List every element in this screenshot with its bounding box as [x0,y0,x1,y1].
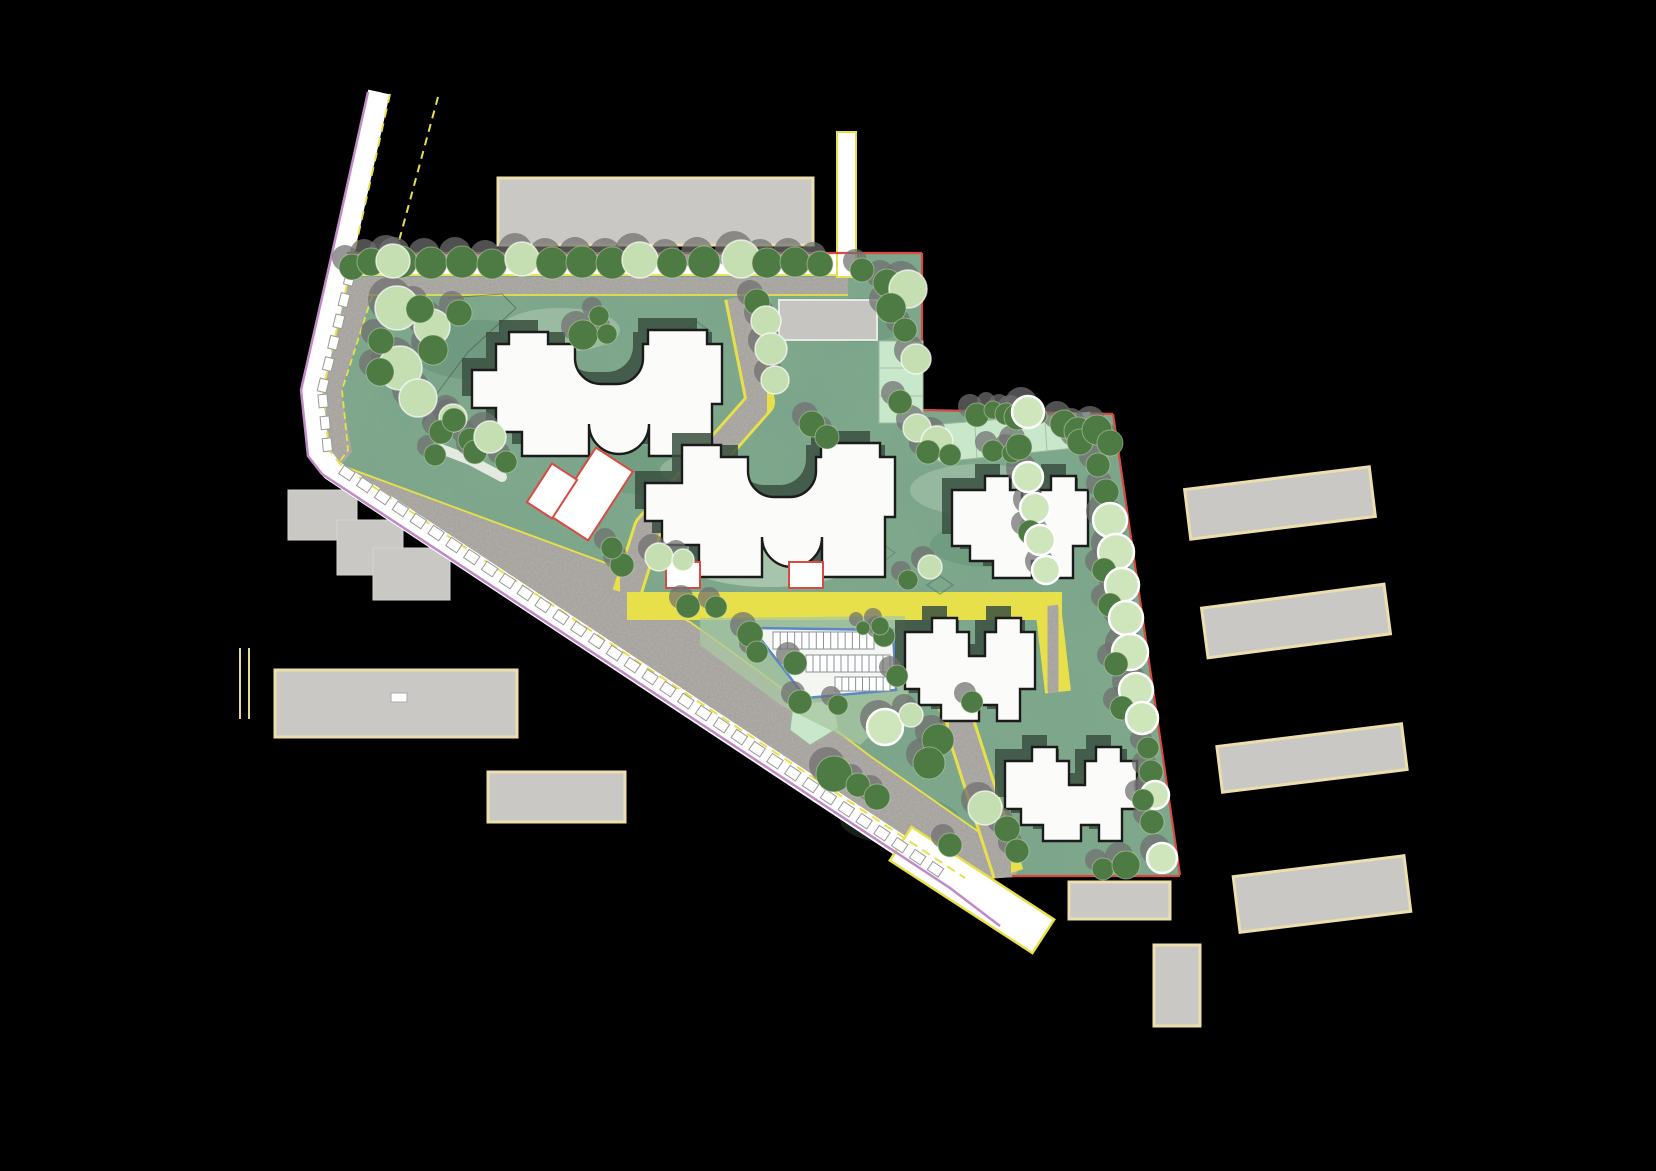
tree-dark [406,295,434,323]
tree-dark [780,247,810,277]
tree-dark [994,816,1020,842]
tree-dark [597,324,617,344]
tree-dark [495,451,517,473]
tree-light [899,703,923,727]
tree-dark [893,318,917,342]
tree-dark [705,596,727,618]
tree-light [755,333,787,365]
setback-dashed-line [396,97,438,252]
neighbor-building-east-1 [1185,467,1376,539]
tree-light [505,242,539,276]
tree-dark [536,247,568,279]
tree-dark [788,690,812,714]
tree-dark [913,747,945,779]
utility-structure-2 [789,562,823,588]
tree-light [1093,503,1127,537]
tree-light [918,555,942,579]
neighbor-building-west-long-notch [391,693,407,702]
tree-dark [850,258,874,282]
tree-light [1126,702,1158,734]
neighbor-building-southwest [488,772,625,822]
tree-dark [916,440,940,464]
tree-dark [657,248,687,278]
tree-dark [815,425,839,449]
tree-dark [982,440,1004,462]
neighbor-building-east-2 [1202,584,1391,658]
tree-dark [368,328,394,354]
path-middle-branch-gravel [1048,606,1058,692]
tree-light [1032,556,1060,584]
neighbor-building-west-step-3 [373,548,450,600]
tree-dark [886,665,908,687]
tree-light [901,344,931,374]
tree-dark [1132,789,1154,811]
tree-light [399,379,437,417]
tree-dark [1137,737,1159,759]
tree-dark [898,570,918,590]
tree-light [1020,493,1050,523]
tree-dark [961,691,983,713]
tree-dark [752,248,782,278]
site-plan [0,0,1656,1171]
tree-light [751,306,781,336]
tree-light [376,244,410,278]
tree-dark [446,246,478,278]
site-plan-canvas [0,0,1656,1171]
tree-dark [1097,430,1123,456]
tree-dark [477,249,507,279]
tree-dark [938,833,962,857]
tree-dark [601,537,623,559]
tree-dark [424,444,446,466]
tree-light [1109,601,1143,635]
neighbor-building-south [1069,882,1170,919]
neighbor-building-top [498,178,813,245]
tree-light [968,791,1002,825]
tree-light [761,366,789,394]
tree-light [1013,462,1043,492]
tree-dark [939,444,961,466]
tree-light [645,543,673,571]
tree-dark [1092,858,1114,880]
tree-light [474,421,506,453]
tree-dark [1104,652,1128,676]
tree-light [1025,525,1055,555]
neighbor-building-east-3 [1217,724,1407,792]
tree-light [867,709,903,745]
tree-dark [442,408,466,432]
tree-dark [688,246,720,278]
parking-lot-gray [779,300,877,340]
tree-dark [418,335,448,365]
tree-dark [783,651,807,675]
tree-dark [807,251,833,277]
tree-dark [1140,810,1164,834]
tree-dark [1093,479,1119,505]
sidewalk-tick [318,394,328,408]
tree-dark [566,246,598,278]
tree-dark [1112,851,1140,879]
tree-dark [589,306,609,326]
sidewalk-tick [320,416,330,430]
tree-dark [828,695,848,715]
tree-dark [864,784,890,810]
tree-dark [446,300,472,326]
neighbor-building-east-4 [1233,856,1411,933]
neighbor-building-west-long [275,670,517,737]
tree-dark [871,617,889,635]
tree-dark [746,641,768,663]
tree-dark [856,621,870,635]
tree-light [1012,396,1044,428]
tree-light [622,242,658,278]
tree-dark [415,247,447,279]
tree-dark [366,358,394,386]
tree-dark [1006,434,1032,460]
tree-light [672,549,694,571]
tree-light [1147,843,1177,873]
tree-dark [1005,839,1029,863]
sidewalk-tick [322,438,332,452]
tree-dark [888,390,912,414]
tree-dark [1086,453,1110,477]
neighbor-building-south-small [1154,945,1200,1026]
tree-dark [676,594,700,618]
